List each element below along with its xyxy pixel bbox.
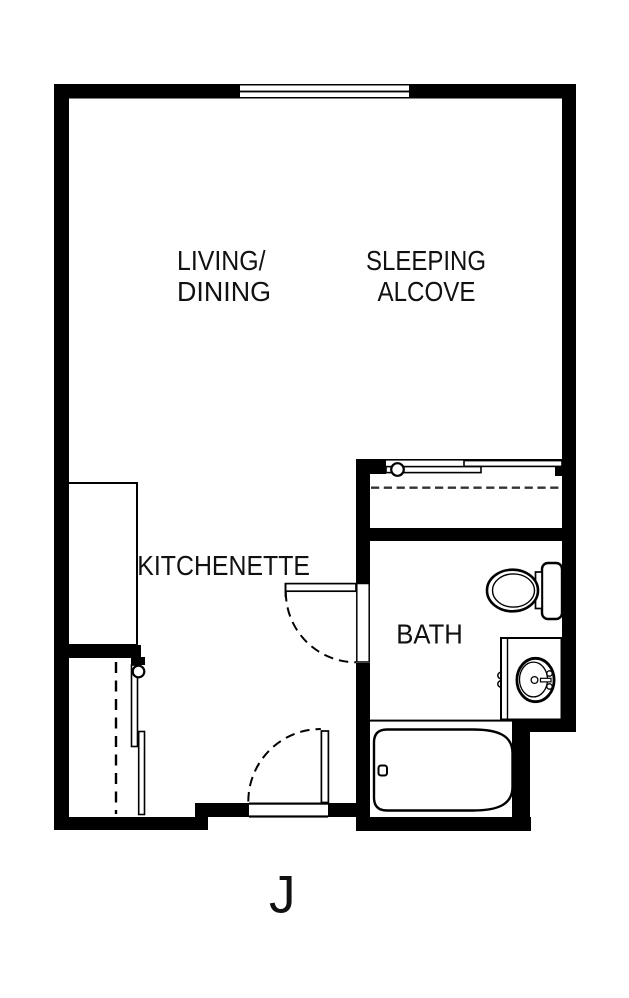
svg-text:KITCHENETTE: KITCHENETTE xyxy=(137,549,310,581)
svg-text:ALCOVE: ALCOVE xyxy=(378,275,476,307)
svg-text:J: J xyxy=(269,866,296,925)
svg-text:DINING: DINING xyxy=(177,275,271,307)
svg-text:LIVING/: LIVING/ xyxy=(177,244,266,276)
svg-text:BATH: BATH xyxy=(396,618,463,650)
svg-text:SLEEPING: SLEEPING xyxy=(366,244,486,276)
